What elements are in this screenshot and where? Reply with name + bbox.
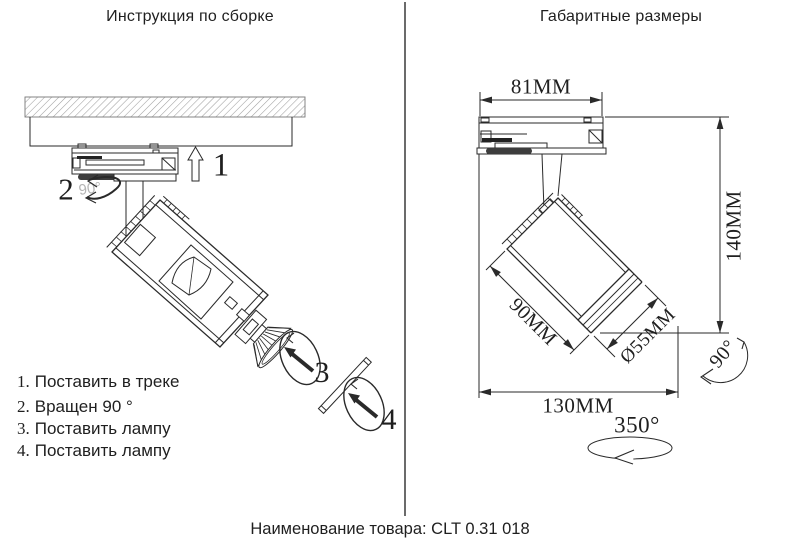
assembly-steps: 1.Поставить в треке 2.Вращен 90 ° 3.Пост… xyxy=(17,371,179,462)
dim-label-81mm: 81MM xyxy=(511,77,571,98)
assembly-step: 2.Вращен 90 ° xyxy=(17,396,179,418)
ceiling xyxy=(25,97,305,117)
right-panel-title: Габаритные размеры xyxy=(540,9,702,25)
step-marker-3: 3 xyxy=(315,358,330,388)
dim-label-130mm: 130MM xyxy=(542,396,613,417)
product-name-label: Наименование товара: CLT 0.31 018 xyxy=(250,521,529,538)
rotation-arc-350-icon xyxy=(588,437,672,464)
track-rail xyxy=(30,117,292,146)
dim-label-rotation-350: 350° xyxy=(614,414,660,437)
assembly-step: 4.Поставить лампу xyxy=(17,440,179,462)
assembly-step: 3.Поставить лампу xyxy=(17,418,179,440)
line-art xyxy=(0,0,800,551)
dimension-140mm xyxy=(600,117,729,333)
dim-label-140mm: 140MM xyxy=(724,190,745,261)
left-panel-title: Инструкция по сборке xyxy=(106,9,274,25)
up-arrow-icon xyxy=(188,147,203,181)
step-marker-4: 4 xyxy=(382,405,397,435)
step-marker-1: 1 xyxy=(213,150,230,183)
step-marker-2: 2 xyxy=(58,174,74,205)
assembly-step: 1.Поставить в треке xyxy=(17,371,179,393)
track-adapter-right xyxy=(477,117,606,227)
instruction-sheet: 90° xyxy=(0,0,800,551)
